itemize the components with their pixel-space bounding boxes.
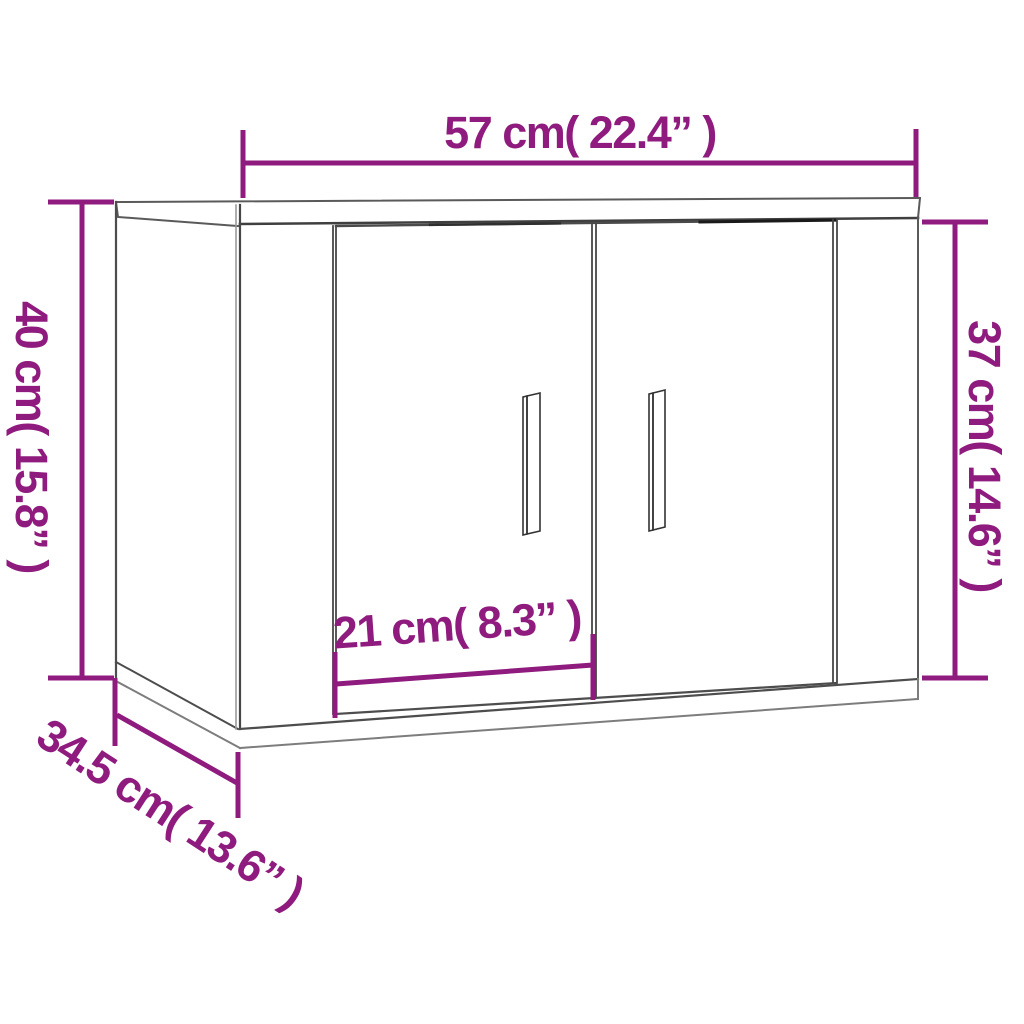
door-center-gap	[592, 224, 596, 698]
furniture-dimension-diagram: 57 cm( 22.4” ) 40 cm( 15.8” ) 37 cm( 14.…	[0, 0, 1024, 1024]
door-top-shadow-right	[700, 220, 835, 222]
dimension-door-width-label: 21 cm( 8.3” )	[331, 590, 582, 658]
cabinet-front-left-edge	[236, 205, 240, 729]
dimension-width-label: 57 cm( 22.4” )	[444, 107, 716, 158]
dimension-depth: 34.5 cm( 13.6” )	[28, 678, 313, 918]
dimension-height-right-label: 37 cm( 14.6” )	[959, 320, 1010, 592]
dimension-width: 57 cm( 22.4” )	[243, 107, 916, 198]
cabinet	[114, 198, 920, 748]
left-door-handle	[523, 393, 540, 535]
dimension-height-left-label: 40 cm( 15.8” )	[6, 301, 57, 573]
right-door-handle	[649, 390, 665, 531]
dimension-depth-label: 34.5 cm( 13.6” )	[28, 708, 313, 918]
dimension-height-right: 37 cm( 14.6” )	[922, 222, 1010, 678]
right-door-right-edge	[833, 220, 837, 683]
diagram-canvas: 57 cm( 22.4” ) 40 cm( 15.8” ) 37 cm( 14.…	[0, 0, 1024, 1024]
door-top-shadow-left	[430, 223, 560, 225]
cabinet-left-side	[114, 202, 240, 748]
dimension-door-width: 21 cm( 8.3” )	[331, 590, 593, 718]
dimension-height-left: 40 cm( 15.8” )	[6, 202, 114, 678]
